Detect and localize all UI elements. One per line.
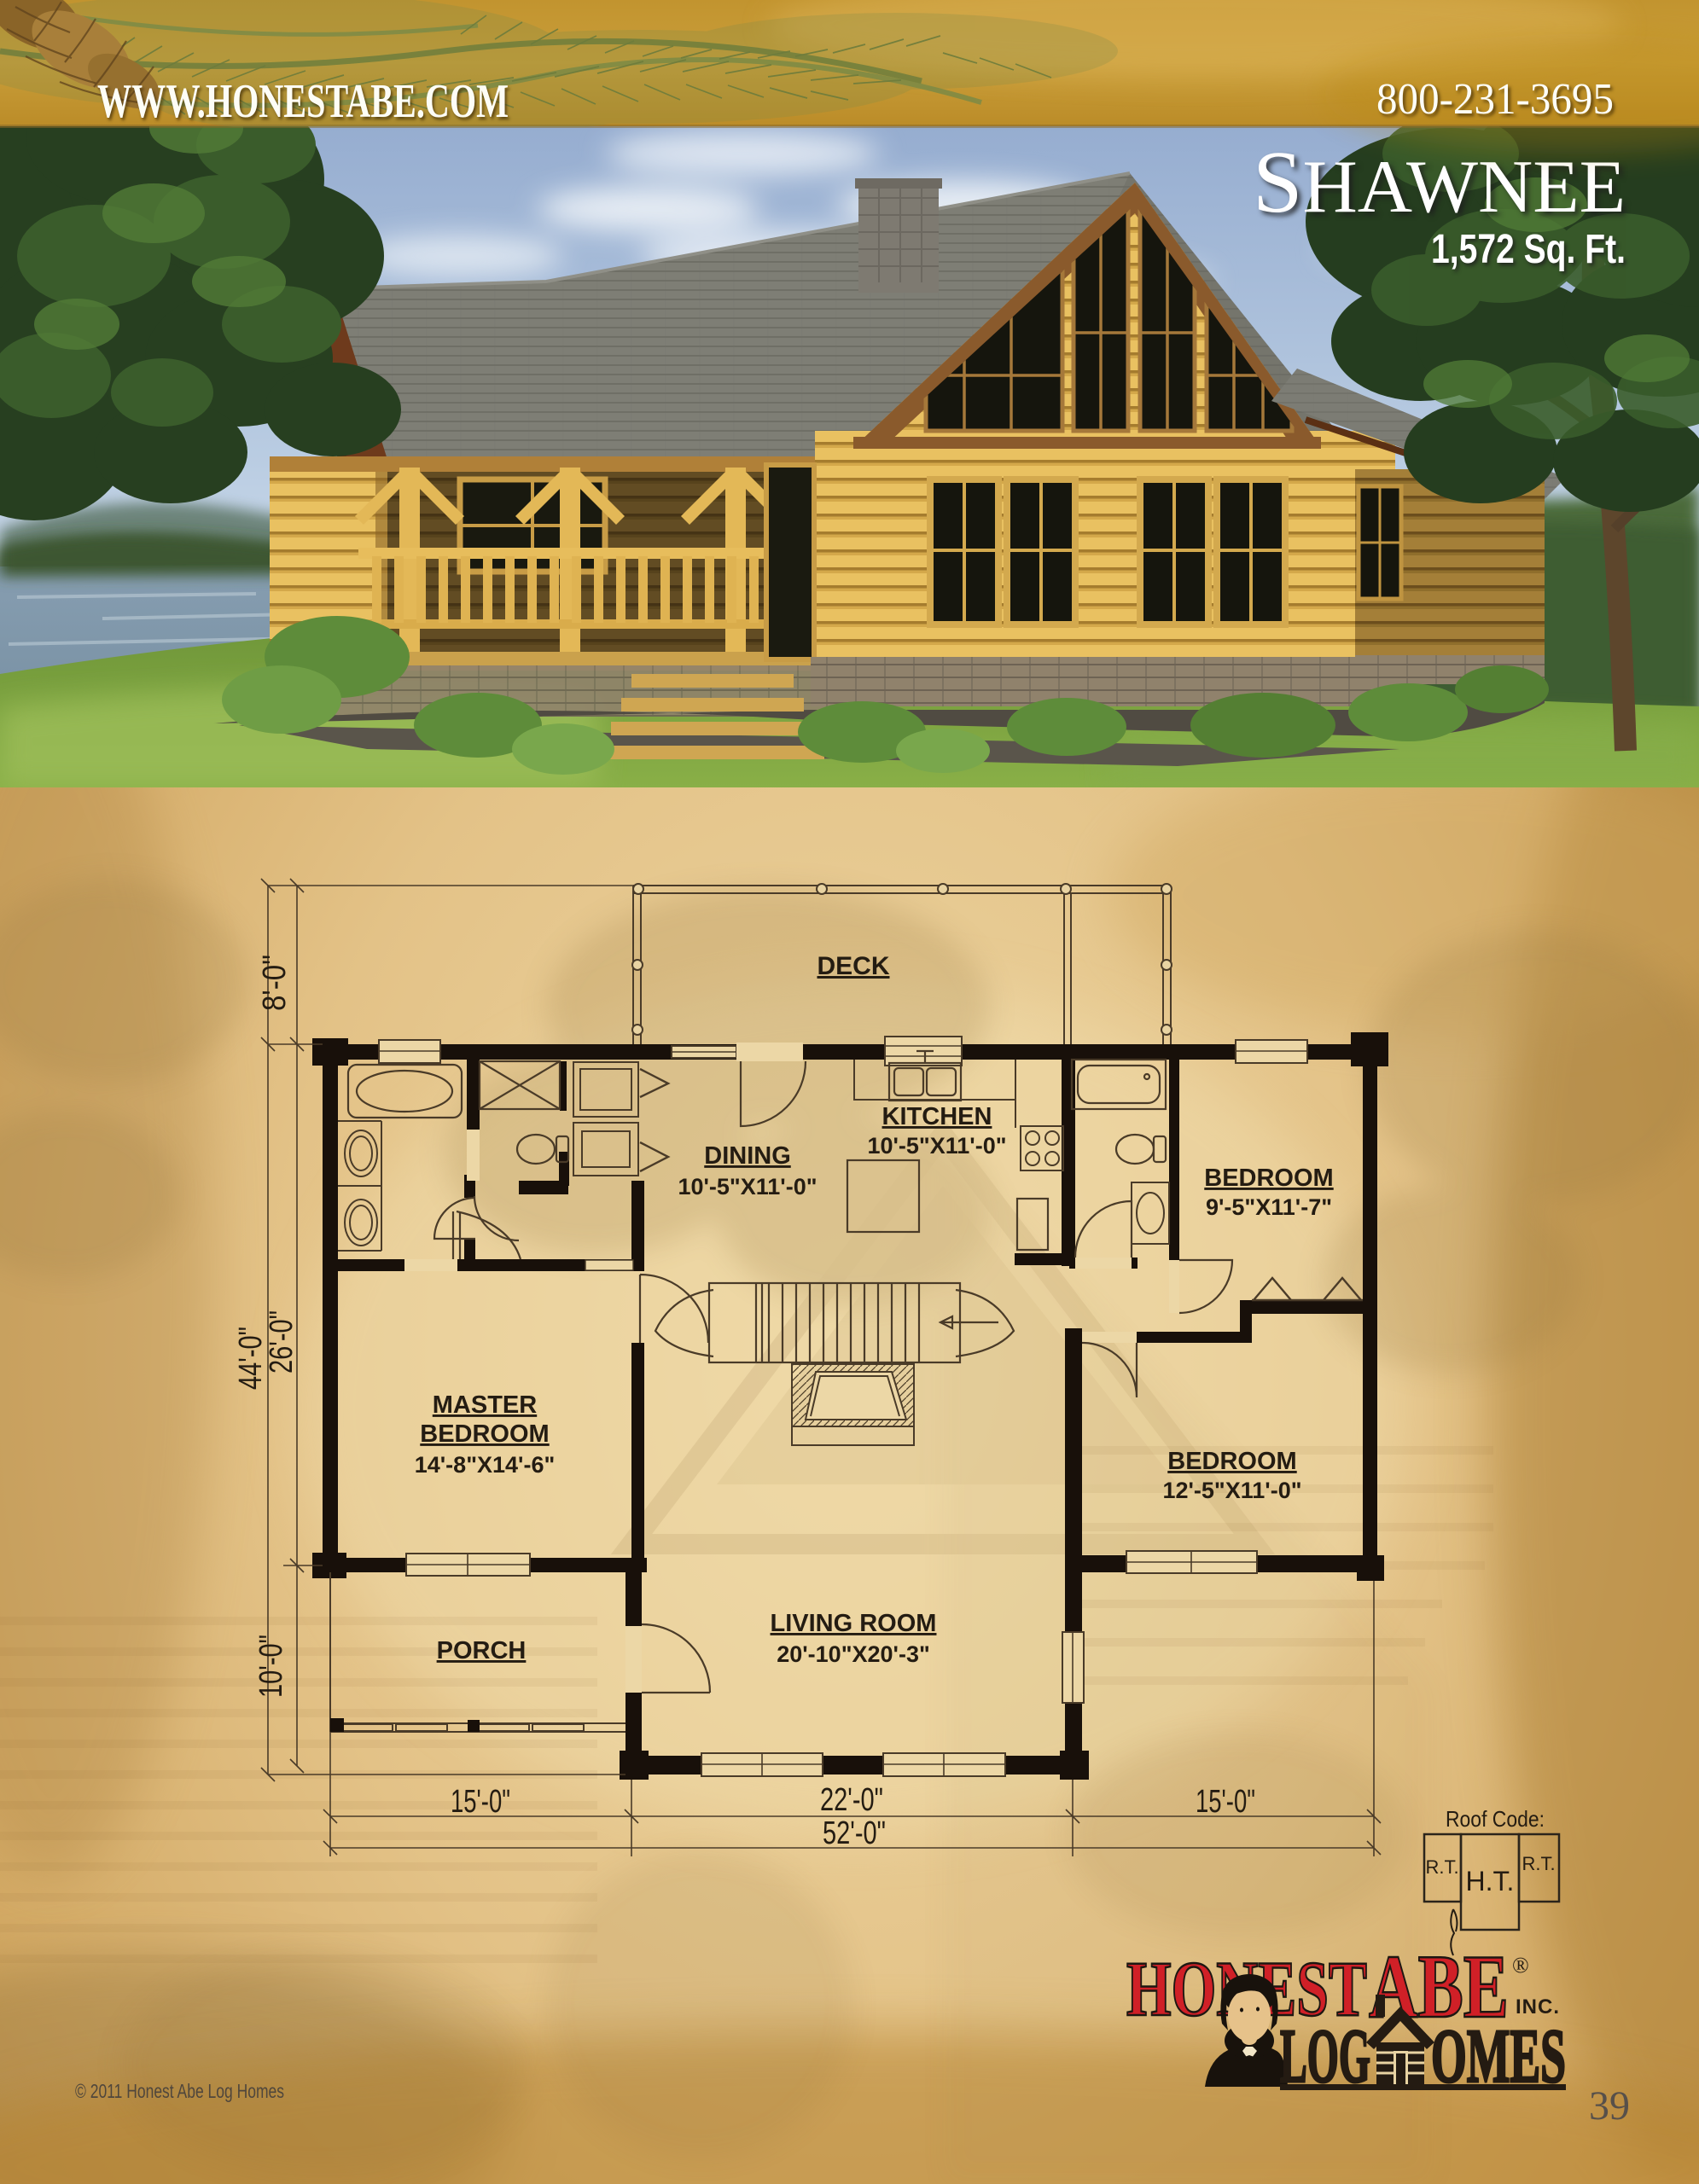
svg-text:Roof Code:: Roof Code:: [1446, 1806, 1545, 1832]
svg-text:DINING: DINING: [704, 1142, 791, 1170]
svg-text:9'-5"X11'-7": 9'-5"X11'-7": [1206, 1194, 1332, 1220]
svg-text:22'-0": 22'-0": [820, 1782, 883, 1818]
svg-text:PORCH: PORCH: [437, 1637, 527, 1664]
svg-text:52'-0": 52'-0": [823, 1815, 886, 1851]
svg-text:15'-0": 15'-0": [451, 1784, 510, 1820]
svg-text:BEDROOM: BEDROOM: [1167, 1448, 1296, 1475]
svg-text:© 2011 Honest Abe Log Homes: © 2011 Honest Abe Log Homes: [75, 2080, 284, 2102]
svg-text:LIVING ROOM: LIVING ROOM: [771, 1610, 937, 1637]
svg-text:20'-10"X20'-3": 20'-10"X20'-3": [777, 1641, 930, 1667]
svg-text:10'-0": 10'-0": [253, 1635, 289, 1698]
svg-text:DECK: DECK: [817, 952, 889, 980]
svg-text:R.T.: R.T.: [1522, 1853, 1555, 1874]
svg-text:10'-5"X11'-0": 10'-5"X11'-0": [678, 1174, 817, 1199]
svg-text:WWW.HONESTABE.COM: WWW.HONESTABE.COM: [97, 75, 509, 128]
svg-text:1,572 Sq. Ft.: 1,572 Sq. Ft.: [1431, 227, 1626, 272]
svg-text:KITCHEN: KITCHEN: [882, 1103, 992, 1130]
svg-text:39: 39: [1589, 2083, 1630, 2129]
svg-text:15'-0": 15'-0": [1196, 1784, 1255, 1820]
svg-text:8'-0": 8'-0": [257, 955, 293, 1011]
svg-text:BEDROOM: BEDROOM: [1204, 1165, 1333, 1192]
svg-text:BEDROOM: BEDROOM: [420, 1420, 549, 1448]
svg-text:14'-8"X14'-6": 14'-8"X14'-6": [415, 1452, 556, 1478]
svg-text:®: ®: [1512, 1953, 1529, 1978]
svg-text:MASTER: MASTER: [433, 1391, 538, 1419]
svg-text:26'-0": 26'-0": [264, 1310, 300, 1374]
svg-text:12'-5"X11'-0": 12'-5"X11'-0": [1162, 1478, 1301, 1503]
svg-text:R.T.: R.T.: [1425, 1856, 1458, 1878]
svg-text:10'-5"X11'-0": 10'-5"X11'-0": [867, 1133, 1006, 1159]
svg-text:800-231-3695: 800-231-3695: [1376, 75, 1614, 124]
svg-text:H.T.: H.T.: [1466, 1866, 1515, 1896]
